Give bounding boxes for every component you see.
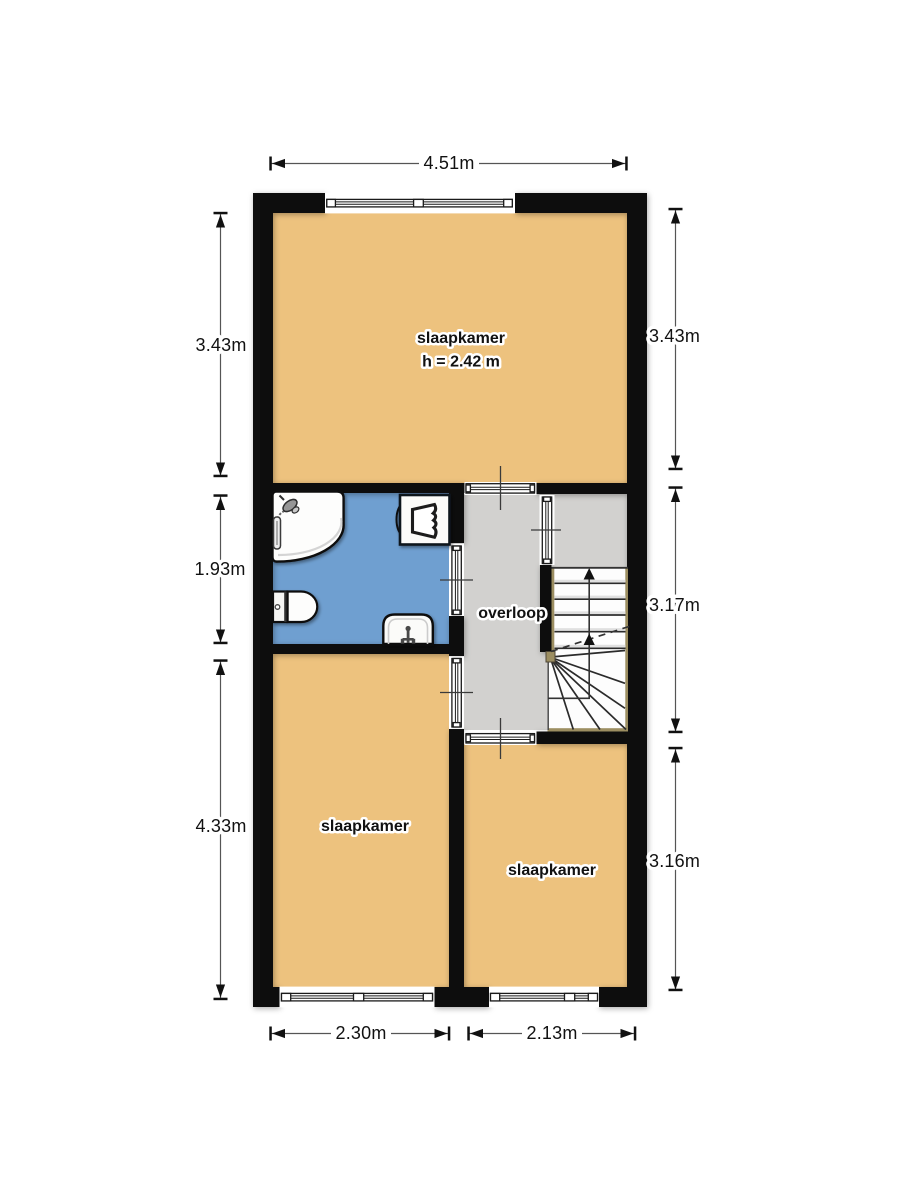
svg-text:slaapkamer: slaapkamer — [321, 818, 409, 835]
svg-text:1.93m: 1.93m — [194, 559, 245, 579]
svg-text:4.51m: 4.51m — [423, 153, 474, 173]
svg-text:slaapkamer: slaapkamer — [417, 330, 505, 347]
svg-text:4.33m: 4.33m — [195, 816, 246, 836]
svg-text:h = 2.42 m: h = 2.42 m — [422, 354, 500, 371]
svg-text:2.13m: 2.13m — [526, 1023, 577, 1043]
svg-text:3.16m: 3.16m — [649, 851, 700, 871]
svg-text:overloop: overloop — [478, 605, 546, 622]
svg-text:slaapkamer: slaapkamer — [508, 862, 596, 879]
svg-text:3.43m: 3.43m — [649, 326, 700, 346]
svg-text:3.43m: 3.43m — [195, 335, 246, 355]
svg-text:2.30m: 2.30m — [335, 1023, 386, 1043]
svg-text:3.17m: 3.17m — [649, 595, 700, 615]
